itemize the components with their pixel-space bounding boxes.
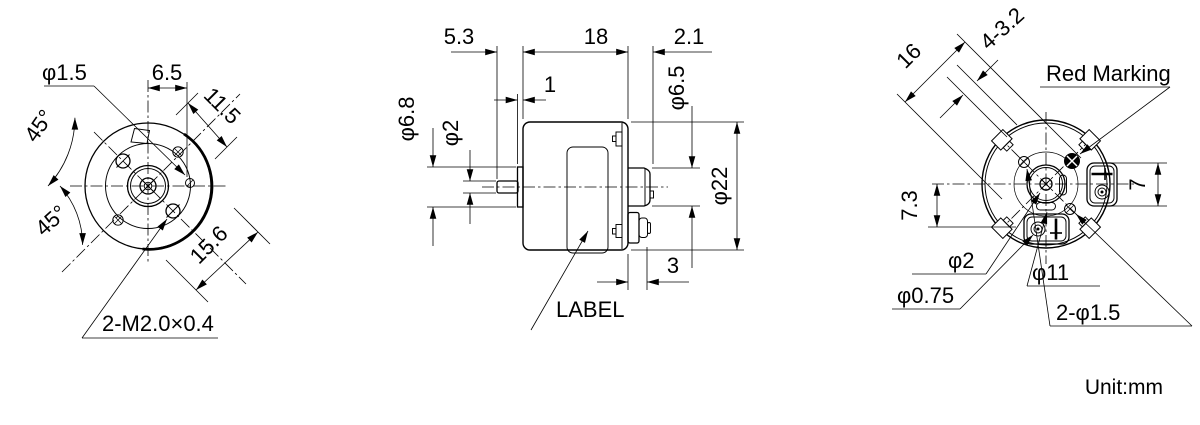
side-view-outline [497,122,654,253]
red-marking-dot [1064,153,1080,169]
dim-4-3-2: 4-3.2 [975,2,1029,54]
side-view: 5.3 18 2.1 1 φ6.8 φ2 φ6.5 [394,24,744,330]
dim-phi-6-5: φ6.5 [664,66,689,111]
dim-16: 16 [891,38,926,73]
mounting-hole [166,204,180,218]
crimp-tab [613,132,623,146]
crimp-tab [613,225,623,238]
dim-18: 18 [584,24,608,49]
dim-45-upper: 45° [19,105,59,147]
unit-note: Unit:mm [1085,376,1163,399]
dim-2-1: 2.1 [674,24,705,49]
drawing-canvas: 6.5 φ1.5 11.5 15.6 45° 45° 2-M2.0×0.4 [0,0,1200,425]
motor-dimension-drawing: 6.5 φ1.5 11.5 15.6 45° 45° 2-M2.0×0.4 [0,0,1200,425]
label-note: LABEL [556,297,625,322]
dim-phi-6-8: φ6.8 [394,97,419,142]
dim-6-5: 6.5 [152,60,183,85]
label-wrap [567,147,608,253]
terminal-right [1087,163,1117,206]
dim-1: 1 [544,72,556,97]
dim-phi-22: φ22 [707,167,732,206]
side-view-dimensions: 5.3 18 2.1 1 φ6.8 φ2 φ6.5 [394,24,744,330]
dim-phi-11: φ11 [1032,260,1069,285]
front-view: 6.5 φ1.5 11.5 15.6 45° 45° 2-M2.0×0.4 [19,60,270,338]
mounting-hole [116,154,130,168]
terminal [628,213,651,244]
front-view-dimensions: 6.5 φ1.5 11.5 15.6 45° 45° 2-M2.0×0.4 [19,60,270,338]
back-view: 16 4-3.2 Red Marking 7 7.3 φ2 φ [891,2,1192,326]
dim-3: 3 [667,253,679,278]
red-marking-label: Red Marking [1046,61,1171,86]
front-view-outline [85,123,212,249]
small-hole [1019,157,1030,168]
dim-phi-0-75: φ0.75 [897,283,954,308]
back-view-dimensions: 16 4-3.2 Red Marking 7 7.3 φ2 φ [891,2,1192,326]
terminal-bottom [1024,214,1069,244]
dim-7-3: 7.3 [897,190,922,221]
dim-15-6: 15.6 [185,221,233,269]
dim-phi-1-5: φ1.5 [42,60,87,85]
dim-2-phi-1-5: 2-φ1.5 [1056,300,1120,325]
dim-11-5: 11.5 [199,82,246,129]
dim-phi-2: φ2 [438,120,463,147]
dim-5-3: 5.3 [444,24,475,49]
dim-phi-2-back: φ2 [948,248,975,273]
dim-7: 7 [1125,178,1150,190]
dim-45-lower: 45° [30,200,71,241]
dim-thread: 2-M2.0×0.4 [102,311,214,336]
